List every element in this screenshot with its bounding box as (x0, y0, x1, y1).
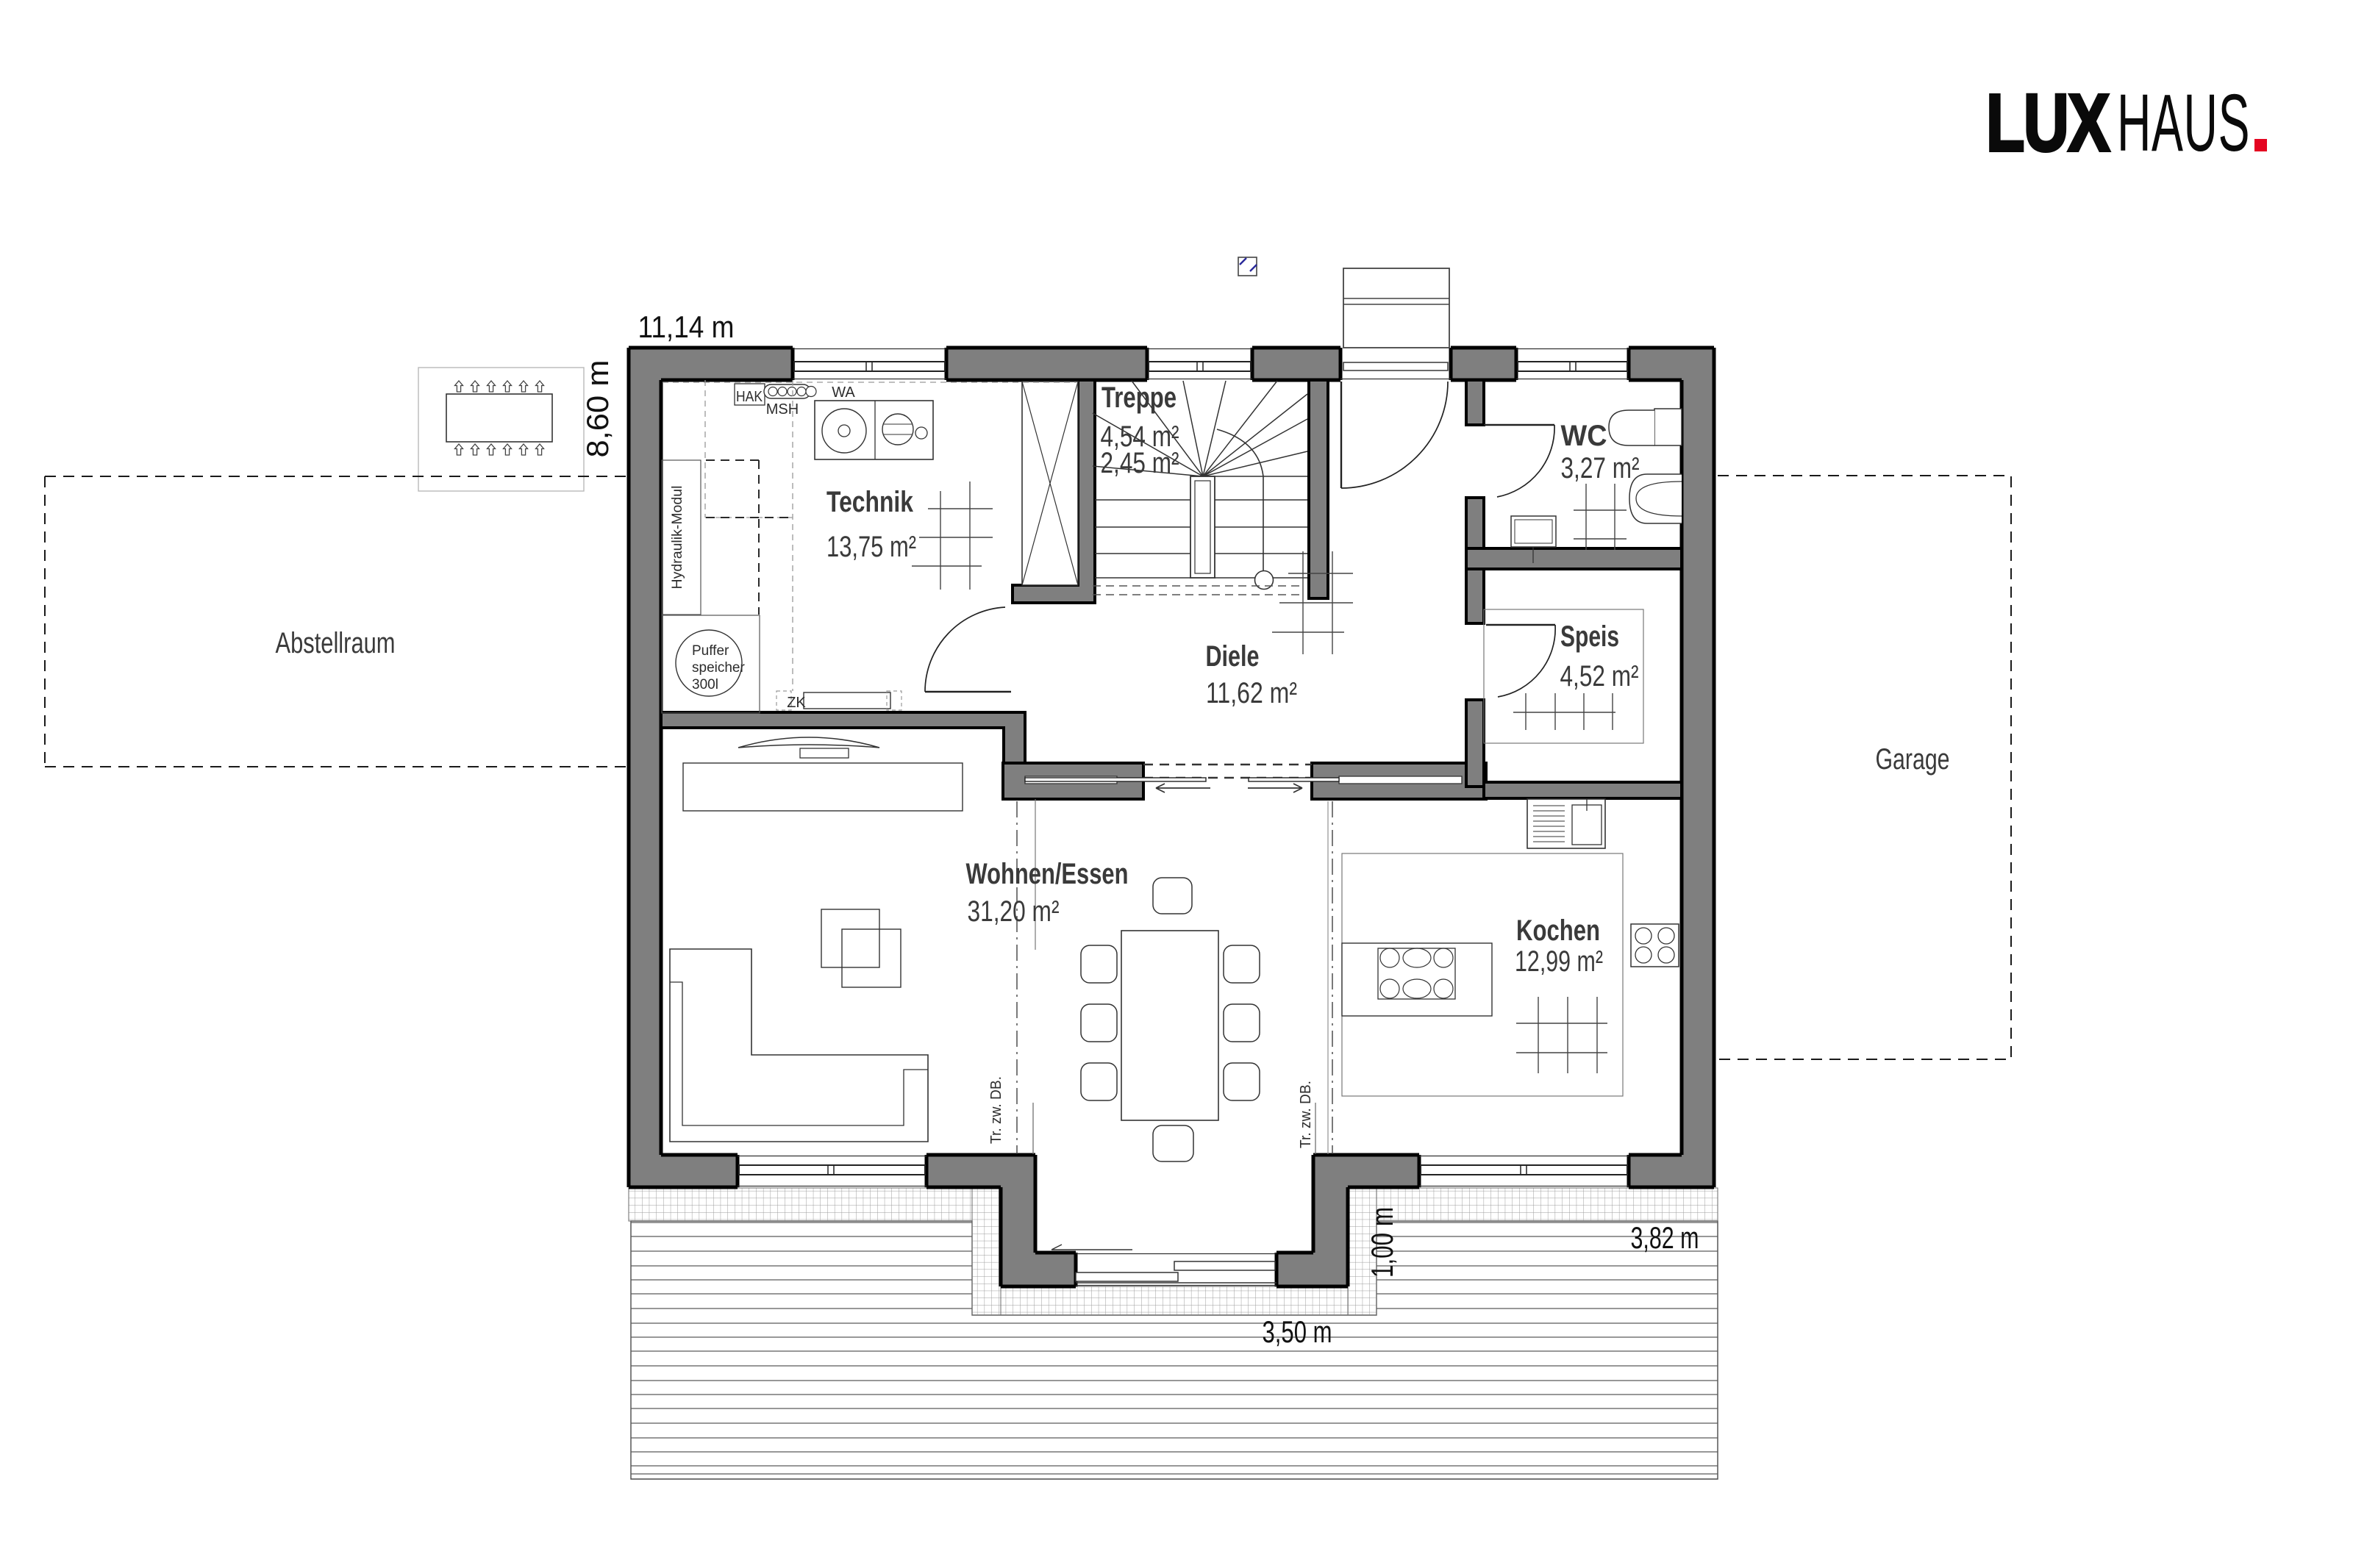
svg-text:Speis: Speis (1560, 620, 1619, 653)
svg-text:WA: WA (832, 384, 855, 401)
svg-text:31,20 m²: 31,20 m² (968, 895, 1060, 928)
svg-text:1,00 m: 1,00 m (1365, 1207, 1399, 1278)
svg-text:Technik: Technik (826, 486, 914, 518)
svg-text:3,50 m: 3,50 m (1263, 1314, 1332, 1349)
svg-text:Wohnen/Essen: Wohnen/Essen (966, 858, 1129, 890)
svg-text:speicher: speicher (692, 660, 745, 676)
svg-text:Kochen: Kochen (1516, 914, 1600, 947)
svg-text:300l: 300l (692, 677, 718, 692)
svg-text:4,52 m²: 4,52 m² (1560, 660, 1639, 692)
svg-text:LUX: LUX (1986, 78, 2110, 168)
svg-text:ZK: ZK (787, 695, 806, 711)
svg-text:3,27 m²: 3,27 m² (1561, 452, 1640, 484)
svg-text:8,60 m: 8,60 m (580, 360, 615, 458)
svg-text:MSH: MSH (766, 401, 799, 418)
svg-text:HAUS: HAUS (2117, 78, 2250, 168)
svg-text:13,75 m²: 13,75 m² (826, 531, 916, 563)
svg-text:Tr. zw. DB.: Tr. zw. DB. (988, 1076, 1004, 1144)
svg-text:2,45 m²: 2,45 m² (1101, 447, 1179, 479)
svg-text:11,14 m: 11,14 m (638, 309, 735, 344)
svg-text:Hydraulik-Modul: Hydraulik-Modul (669, 486, 685, 590)
svg-text:11,62 m²: 11,62 m² (1206, 677, 1297, 709)
svg-text:3,82 m: 3,82 m (1631, 1220, 1699, 1255)
svg-text:Tr. zw. DB.: Tr. zw. DB. (1298, 1081, 1314, 1148)
svg-text:Diele: Diele (1206, 640, 1260, 673)
svg-text:Garage: Garage (1876, 743, 1950, 776)
svg-text:12,99 m²: 12,99 m² (1515, 945, 1603, 978)
svg-text:Puffer: Puffer (692, 643, 729, 659)
svg-text:WC: WC (1561, 420, 1607, 452)
svg-text:Abstellraum: Abstellraum (276, 627, 396, 659)
svg-text:Treppe: Treppe (1101, 382, 1176, 414)
svg-text:HAK: HAK (736, 389, 763, 405)
